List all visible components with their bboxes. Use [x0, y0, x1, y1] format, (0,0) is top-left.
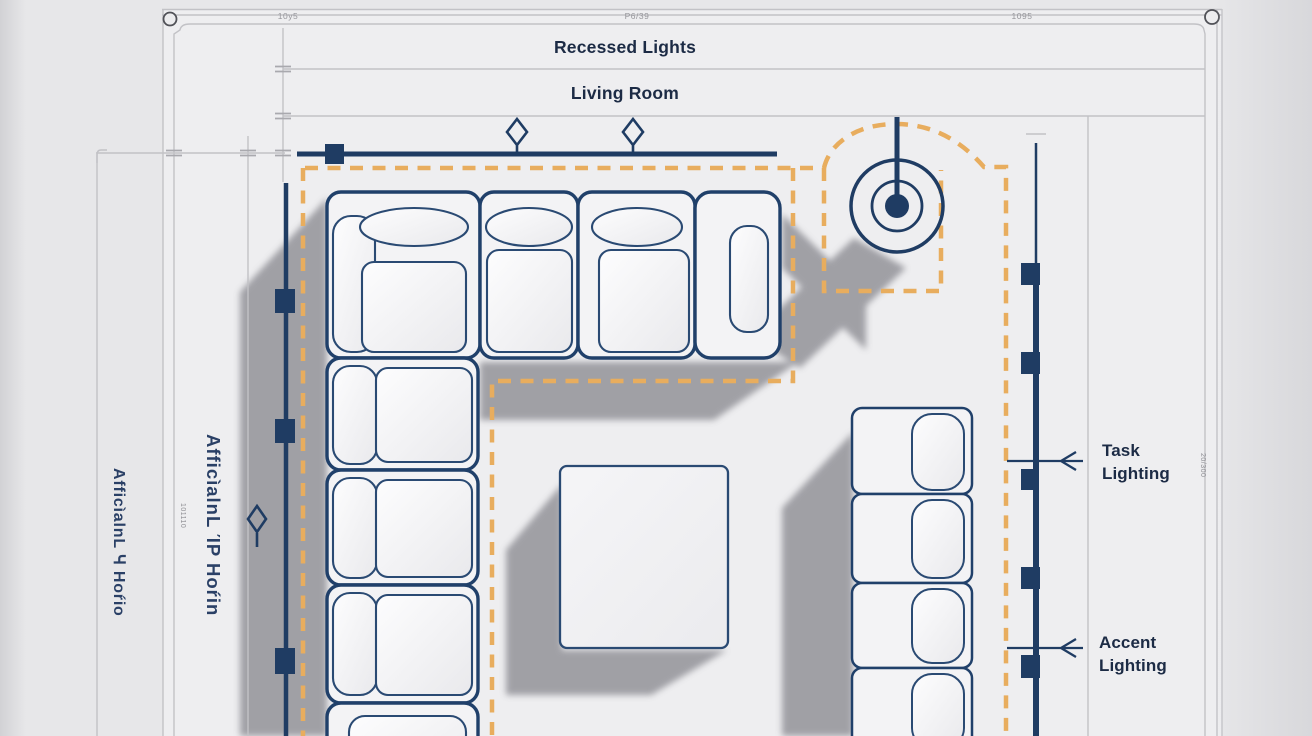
seat-cushion	[376, 368, 472, 462]
wall-sconce-block	[1021, 655, 1040, 678]
dim-text-top-mid: P6/39	[605, 11, 669, 21]
seat-cushion	[487, 250, 572, 352]
back-cushion	[360, 208, 468, 246]
back-cushion	[333, 593, 377, 695]
vertical-dim-right: 20/300	[1199, 453, 1206, 477]
seat-cushion	[599, 250, 689, 352]
recessed-lights-label: Recessed Lights	[465, 37, 785, 58]
back-cushion	[333, 478, 377, 578]
back-cushion	[486, 208, 572, 246]
wall-sconce-block	[275, 648, 295, 674]
back-cushion	[912, 500, 964, 578]
wall-sconce-block	[1021, 352, 1040, 374]
wall-sconce-block	[1021, 263, 1040, 285]
vertical-annotation-outer: AfficìalnL Ɥ Hoŕio	[109, 468, 129, 617]
wall-sconce-block	[275, 289, 295, 313]
right-sofa-cushions	[912, 414, 964, 736]
seat-cushion	[376, 595, 472, 695]
wall-sconce-block	[1021, 469, 1038, 490]
wall-sconce-block	[275, 419, 295, 443]
back-cushion	[912, 674, 964, 736]
living-room-label: Living Room	[465, 83, 785, 104]
corner-circle-right	[1205, 10, 1219, 24]
vertical-annotation-inner: AfficìalnL ΊP Hoŕin	[202, 434, 224, 616]
dim-text-top-left: 10y5	[256, 11, 320, 21]
accent-lighting-label: Accent Lighting	[1099, 632, 1173, 677]
armrest-cushion	[730, 226, 768, 332]
armrest-cushion	[349, 716, 466, 736]
dim-text-top-right: 1095	[990, 11, 1054, 21]
vertical-dim-left: 101110	[179, 503, 186, 528]
wall-sconce-block	[325, 144, 344, 164]
back-cushion	[912, 589, 964, 663]
wall-sconce-block	[1021, 567, 1040, 589]
seat-cushion	[362, 262, 466, 352]
coffee-table	[560, 466, 728, 648]
seat-cushion	[376, 480, 472, 577]
floor-plan-drawing	[0, 0, 1312, 736]
back-cushion	[333, 366, 377, 464]
back-cushion	[592, 208, 682, 246]
corner-circle-left	[164, 13, 177, 26]
blueprint-canvas: Recessed Lights Living Room Task Lightin…	[0, 0, 1312, 736]
task-lighting-label: Task Lighting	[1102, 440, 1176, 485]
back-cushion	[912, 414, 964, 490]
